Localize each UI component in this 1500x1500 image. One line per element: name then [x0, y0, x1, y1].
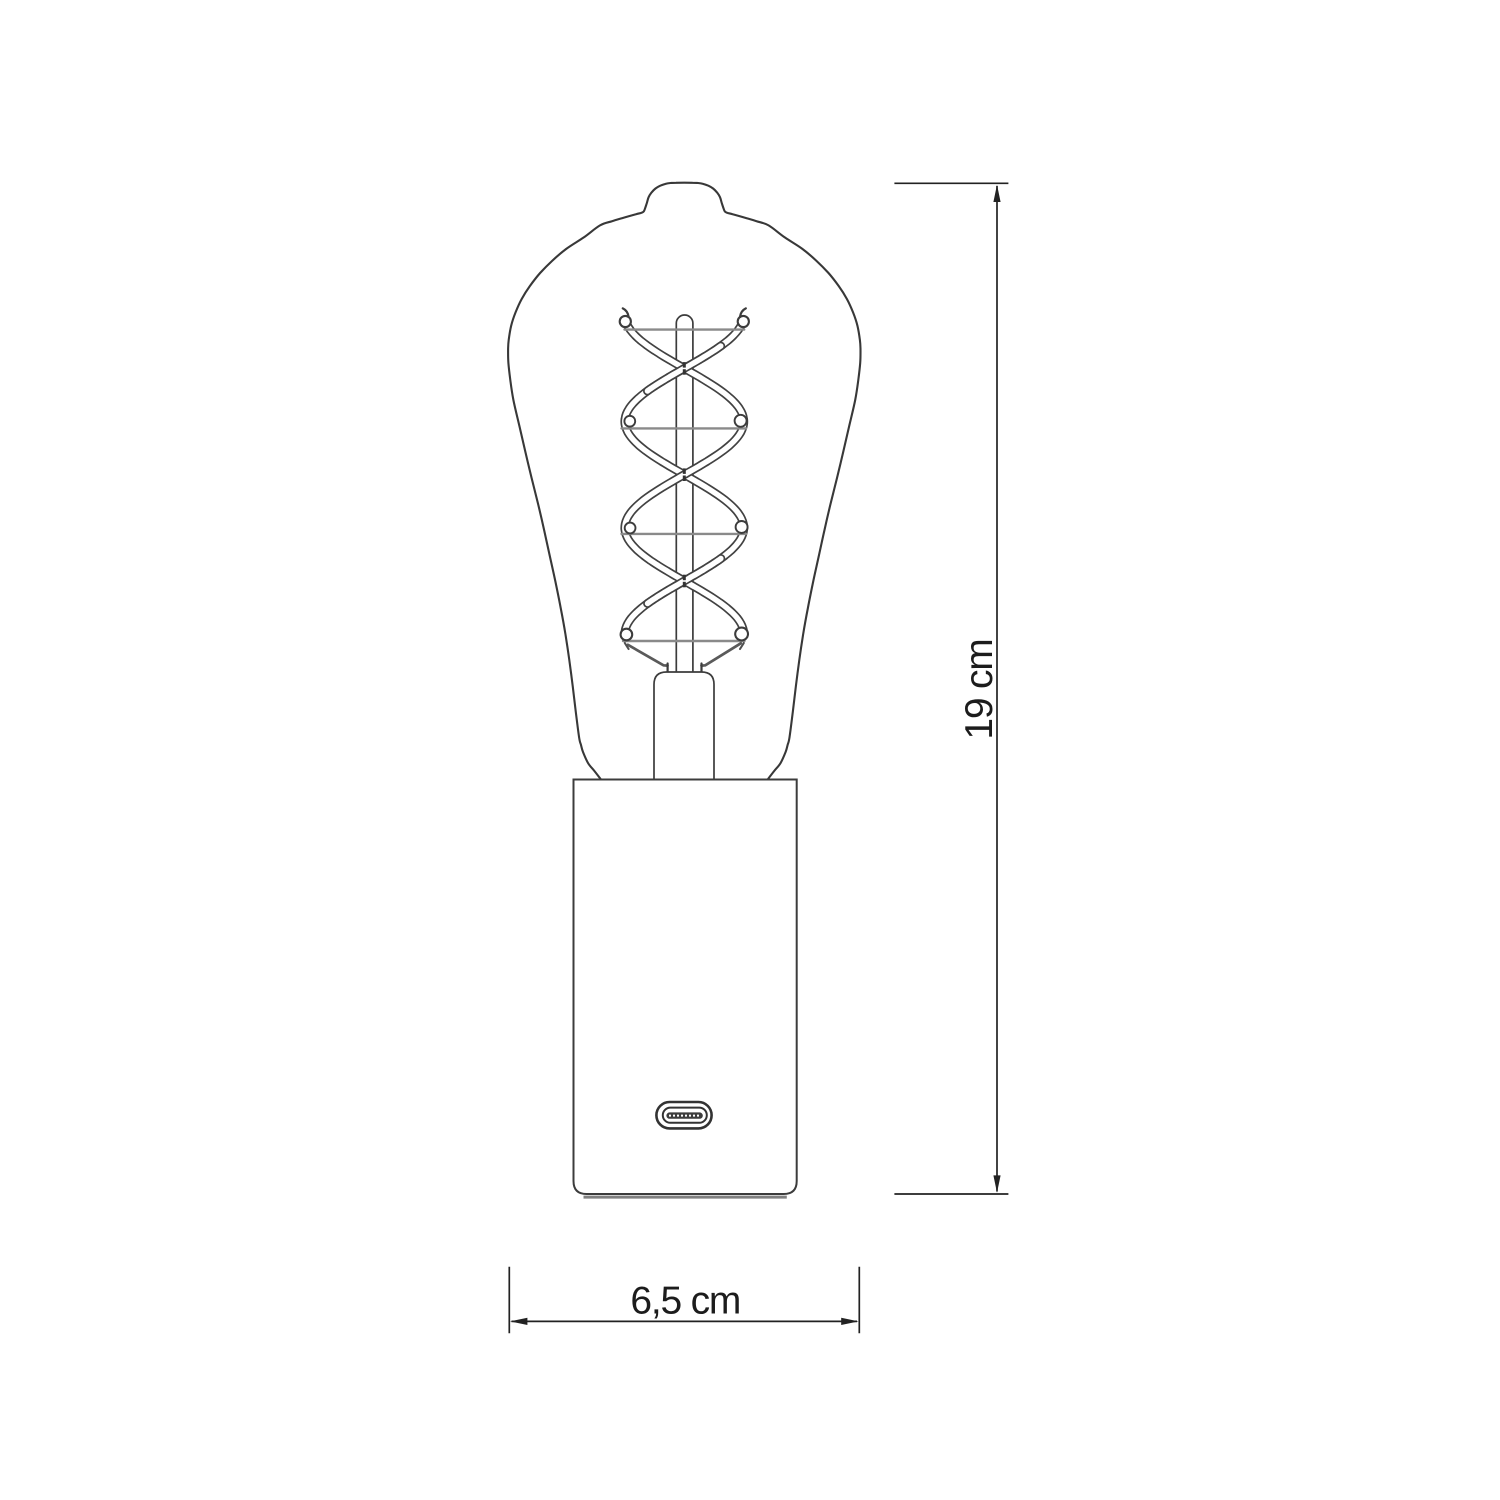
svg-text:19 cm: 19 cm	[958, 639, 1001, 739]
svg-text:6,5 cm: 6,5 cm	[630, 1280, 740, 1323]
